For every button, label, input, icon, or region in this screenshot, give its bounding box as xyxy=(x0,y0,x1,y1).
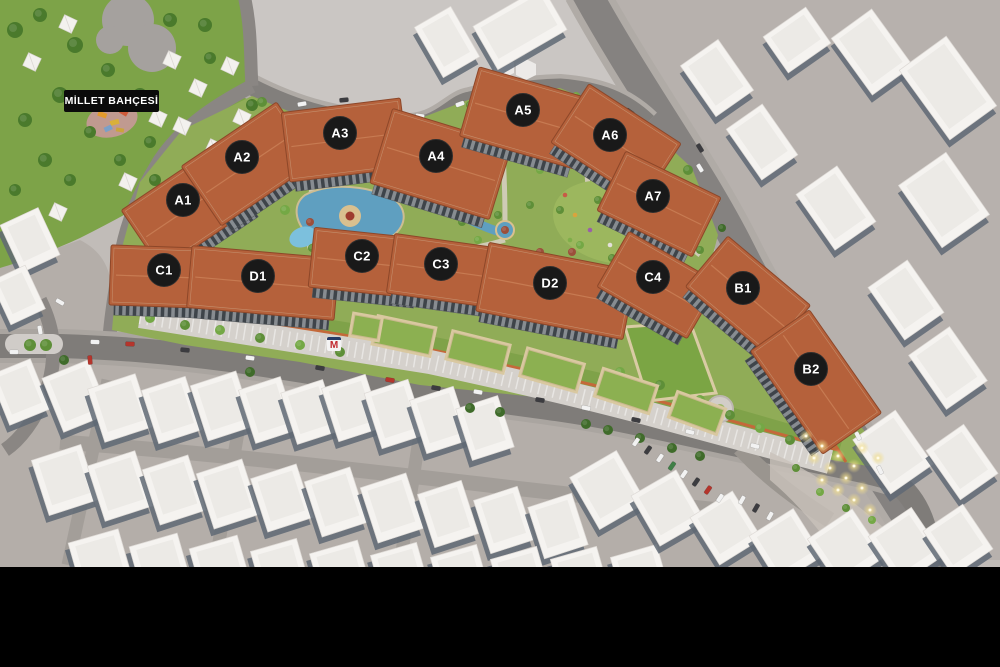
car xyxy=(339,97,348,102)
tree-highlight xyxy=(54,89,62,97)
tree-highlight xyxy=(66,176,72,182)
tree-highlight xyxy=(668,444,673,449)
badge-label: C3 xyxy=(432,257,449,272)
tree-highlight xyxy=(756,424,761,429)
building-badge-D2: D2 xyxy=(534,267,567,300)
badge-label: C1 xyxy=(155,263,172,278)
parking-light xyxy=(861,447,864,450)
tree-highlight xyxy=(20,115,27,122)
car xyxy=(10,350,19,354)
badge-label: A2 xyxy=(233,150,250,165)
flowerbed xyxy=(573,213,578,218)
building-badge-A6: A6 xyxy=(594,119,627,152)
tree-highlight xyxy=(843,505,847,509)
parking-light xyxy=(821,445,824,448)
tree-highlight xyxy=(9,24,17,32)
tree-highlight xyxy=(495,212,499,216)
tree-highlight xyxy=(786,436,791,441)
tree-highlight xyxy=(256,334,261,339)
metro-station-icon: M xyxy=(327,337,341,351)
tree-highlight xyxy=(793,465,797,469)
tree-highlight xyxy=(26,341,32,347)
flowerbed xyxy=(568,238,573,243)
tree-highlight xyxy=(696,452,701,457)
tree-highlight xyxy=(684,166,689,171)
tree-highlight xyxy=(248,101,254,107)
badge-label: A3 xyxy=(331,126,348,141)
tree-highlight xyxy=(258,98,263,103)
badge-label: C4 xyxy=(644,270,662,285)
site-plan-render: A1A2A3A4A5A6A7C1D1C2C3D2C4B1B2 MİLLET BA… xyxy=(0,0,1000,667)
tree-highlight xyxy=(281,206,286,211)
tree-highlight xyxy=(246,368,251,373)
flowerbed xyxy=(608,243,613,248)
tree-highlight xyxy=(577,242,581,246)
parking-light xyxy=(829,467,832,470)
tree-highlight xyxy=(466,404,471,409)
badge-label: B2 xyxy=(802,362,819,377)
parking-light xyxy=(869,509,872,512)
tree-highlight xyxy=(557,207,561,211)
tree-highlight xyxy=(296,341,301,346)
park-road xyxy=(244,0,252,86)
tree-highlight xyxy=(11,186,17,192)
parking-light xyxy=(837,489,840,492)
retail-pavilion xyxy=(348,311,384,342)
building-badge-A2: A2 xyxy=(226,141,259,174)
tree-highlight xyxy=(569,249,573,253)
tree-highlight xyxy=(103,65,110,72)
tree-highlight xyxy=(609,255,613,259)
building-badge-C1: C1 xyxy=(148,254,181,287)
building-badge-D1: D1 xyxy=(242,260,275,293)
parking-light xyxy=(853,499,856,502)
tree-highlight xyxy=(869,517,873,521)
car xyxy=(90,340,99,345)
tree-highlight xyxy=(60,356,65,361)
building-badge-A5: A5 xyxy=(507,94,540,127)
parking-light xyxy=(877,457,880,460)
flowerbed xyxy=(563,193,568,198)
car xyxy=(87,355,92,364)
tree-highlight xyxy=(582,420,587,425)
building-badge-B2: B2 xyxy=(795,353,828,386)
badge-label: D1 xyxy=(249,269,266,284)
tree-highlight xyxy=(719,225,723,229)
tree-highlight xyxy=(151,176,157,182)
tree-highlight xyxy=(206,54,212,60)
car xyxy=(180,347,189,352)
badge-label: D2 xyxy=(541,276,558,291)
tree-highlight xyxy=(502,227,506,231)
park-name-text: MİLLET BAHÇESİ xyxy=(65,95,159,107)
letterbox-band xyxy=(0,567,1000,667)
badge-label: A4 xyxy=(427,149,445,164)
parking-light xyxy=(805,435,808,438)
parking-light xyxy=(813,457,816,460)
building-badge-A4: A4 xyxy=(420,140,453,173)
badge-label: A1 xyxy=(174,193,191,208)
tree-highlight xyxy=(604,426,609,431)
tree-highlight xyxy=(69,39,77,47)
tree-highlight xyxy=(42,341,48,347)
flowerbed xyxy=(588,228,593,233)
park-name-label: MİLLET BAHÇESİ xyxy=(64,90,159,112)
car xyxy=(245,355,255,361)
tree-highlight xyxy=(697,247,701,251)
building-badge-C4: C4 xyxy=(637,261,670,294)
building-badge-C2: C2 xyxy=(346,240,379,273)
building-badge-B1: B1 xyxy=(727,272,760,305)
pavilion-lawn-roof xyxy=(351,315,380,339)
park-plaza xyxy=(96,26,124,54)
badge-label: A6 xyxy=(601,128,618,143)
building-badge-A3: A3 xyxy=(324,117,357,150)
building-badge-C3: C3 xyxy=(425,248,458,281)
badge-label: B1 xyxy=(734,281,751,296)
tree-highlight xyxy=(146,138,152,144)
parking-light xyxy=(853,465,856,468)
badge-label: C2 xyxy=(353,249,370,264)
building-badge-A7: A7 xyxy=(637,180,670,213)
tree-highlight xyxy=(200,20,207,27)
tree-highlight xyxy=(40,155,47,162)
parking-light xyxy=(845,477,848,480)
island-gazebo xyxy=(346,212,355,221)
tree-highlight xyxy=(726,411,731,416)
badge-label: A7 xyxy=(644,189,661,204)
tree-highlight xyxy=(527,202,531,206)
tree-highlight xyxy=(475,237,479,241)
building-badge-A1: A1 xyxy=(167,184,200,217)
tree-highlight xyxy=(595,197,599,201)
metro-letter: M xyxy=(330,341,338,351)
tree-highlight xyxy=(181,321,186,326)
badge-label: A5 xyxy=(514,103,531,118)
tree-highlight xyxy=(35,10,42,17)
tree-highlight xyxy=(165,15,172,22)
tree-highlight xyxy=(307,219,311,223)
parking-light xyxy=(821,479,824,482)
tree-highlight xyxy=(216,326,221,331)
tree-highlight xyxy=(116,156,122,162)
tree-highlight xyxy=(496,408,501,413)
car xyxy=(125,342,134,347)
tree-highlight xyxy=(817,489,821,493)
parking-light xyxy=(861,487,864,490)
parking-light xyxy=(837,455,840,458)
tree-highlight xyxy=(86,128,92,134)
